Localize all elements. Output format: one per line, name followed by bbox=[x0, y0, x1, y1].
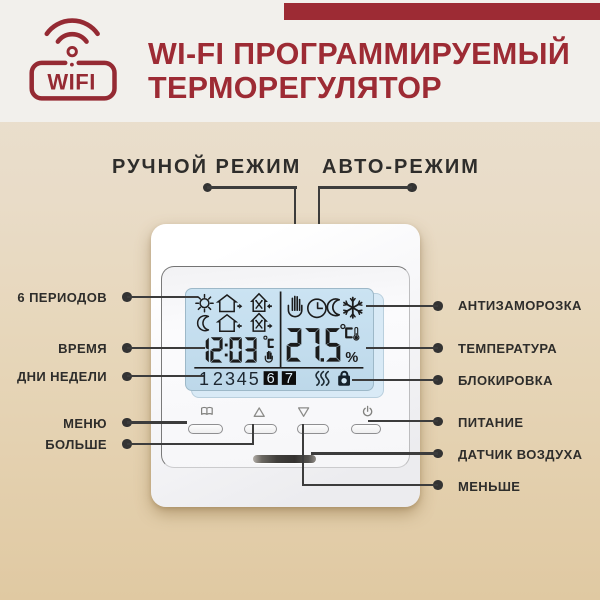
svg-text:6: 6 bbox=[267, 371, 275, 387]
svg-text:7: 7 bbox=[285, 371, 293, 387]
svg-text:1: 1 bbox=[199, 369, 209, 389]
svg-text:5: 5 bbox=[249, 369, 259, 389]
svg-text:3: 3 bbox=[225, 369, 235, 389]
svg-text:%: % bbox=[345, 350, 358, 366]
svg-text:4: 4 bbox=[237, 369, 247, 389]
svg-text:2: 2 bbox=[213, 369, 223, 389]
